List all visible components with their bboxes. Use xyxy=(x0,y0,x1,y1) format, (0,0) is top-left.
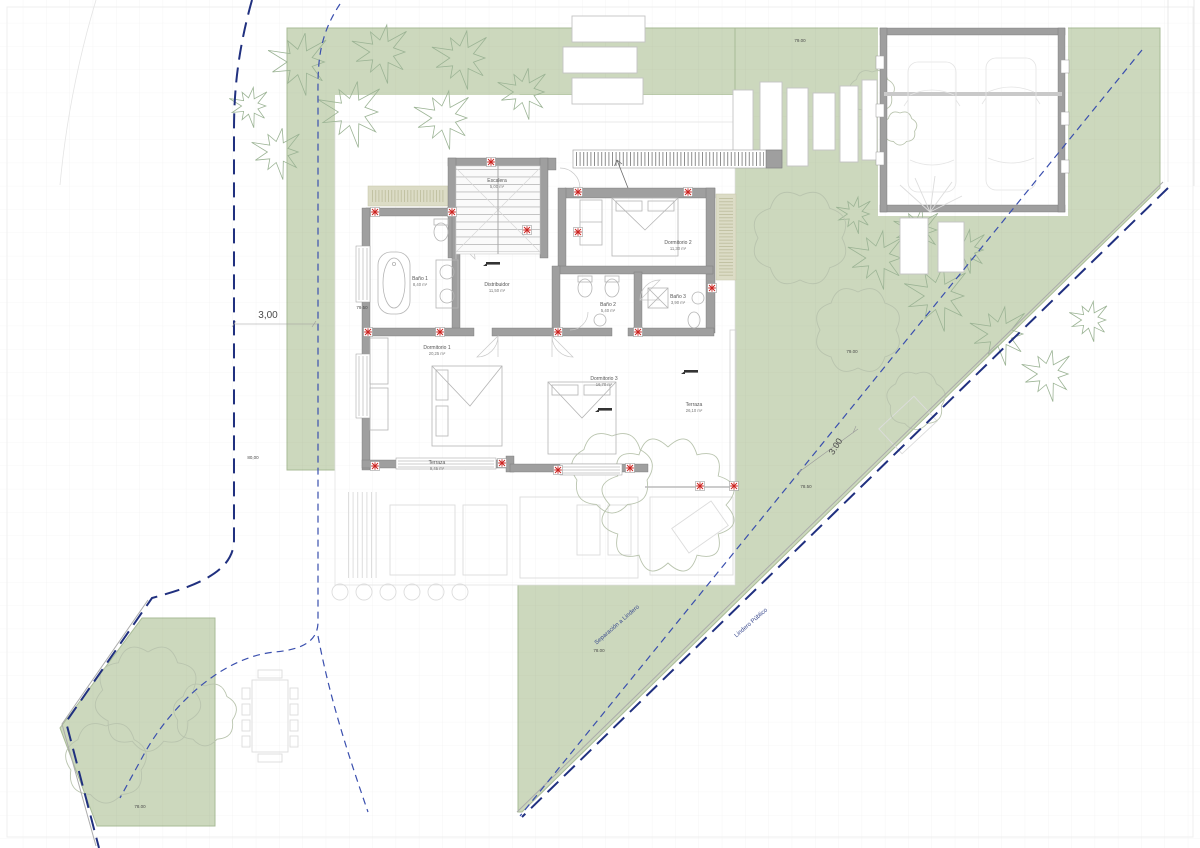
column-marker-icon xyxy=(498,459,507,468)
column-marker-icon xyxy=(364,328,373,337)
dimension-label: 80,00 xyxy=(247,455,259,460)
dimension-label: 78.00 xyxy=(134,804,146,809)
meter-grid xyxy=(0,0,1200,848)
column-marker-icon xyxy=(574,188,583,197)
room-area-label: 16,70 m² xyxy=(596,382,613,387)
room-area-label: 20,25 m² xyxy=(429,351,446,356)
room-area-label: 8,40 m² xyxy=(413,282,428,287)
column-marker-icon xyxy=(554,328,563,337)
garage-inner-wall xyxy=(884,92,1062,96)
room-area-label: 3,90 m² xyxy=(671,300,686,305)
dimension-label: 79.50 xyxy=(356,305,368,310)
column-marker-icon xyxy=(708,284,717,293)
dimension-label: 79.00 xyxy=(794,38,806,43)
column-marker-icon xyxy=(371,462,380,471)
column-marker-icon xyxy=(371,208,380,217)
column-marker-icon xyxy=(730,482,739,491)
room-area-label: 11,30 m² xyxy=(670,246,687,251)
room-area-label: 5,00 m² xyxy=(490,184,505,189)
column-marker-icon xyxy=(436,328,445,337)
dimension-label: 78.50 xyxy=(800,484,812,489)
column-marker-icon xyxy=(684,188,693,197)
floor-plan-drawing: Escalera5,00 m²Baño 18,40 m²Distribuidor… xyxy=(0,0,1200,848)
site-plan-page: Escalera5,00 m²Baño 18,40 m²Distribuidor… xyxy=(0,0,1200,848)
column-marker-icon xyxy=(574,228,583,237)
column-marker-icon xyxy=(554,466,563,475)
bathtub xyxy=(378,252,410,314)
room-area-label: 26,10 m² xyxy=(686,408,703,413)
walkway-end-block xyxy=(766,150,782,168)
column-marker-icon xyxy=(634,328,643,337)
column-marker-icon xyxy=(626,464,635,473)
column-marker-icon xyxy=(448,208,457,217)
column-marker-icon xyxy=(523,226,532,235)
room-area-label: 11,50 m² xyxy=(489,288,506,293)
column-marker-icon xyxy=(487,158,496,167)
dimension-label: 3,00 xyxy=(258,310,278,321)
column-marker-icon xyxy=(696,482,705,491)
room-area-label: 5,40 m² xyxy=(601,308,616,313)
dimension-label: 79.00 xyxy=(846,349,858,354)
room-area-label: 9,45 m² xyxy=(430,466,445,471)
dimension-label: 78.00 xyxy=(593,648,605,653)
